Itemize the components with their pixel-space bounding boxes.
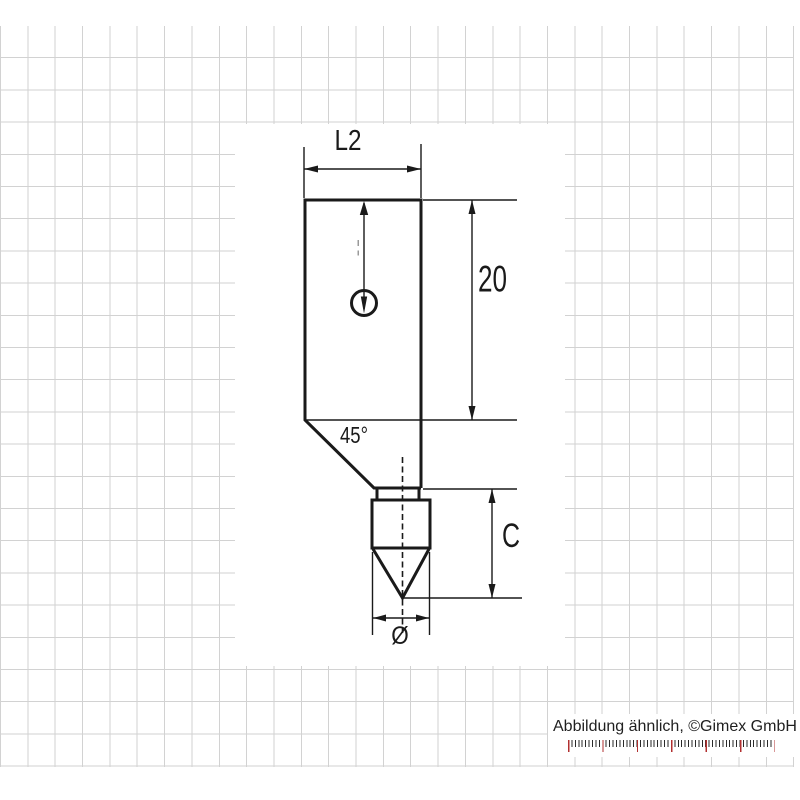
part-outline [305,200,430,598]
neck [377,489,419,500]
ruler-major-ticks [568,740,775,752]
caption-box: Abbildung ähnlich, ©Gimex GmbH [548,714,796,757]
product-image: L2 20 45° C Ø Abbildung ähnlich, ©Gimex … [0,0,800,800]
dimension-arrowheads [304,166,496,622]
dim-label-l2: L2 [335,125,362,157]
ruler-scale-icon [568,740,775,752]
centerline-dash-mark [358,251,360,256]
technical-drawing: L2 20 45° C Ø [0,0,800,800]
measuring-point-icon [352,201,377,316]
diameter-symbol: Ø [391,622,409,650]
cone-tip [373,549,429,598]
dimension-lines [304,144,522,635]
dim-label-c: C [502,517,520,555]
centerline-dash-mark [358,240,360,246]
cylinder [372,500,430,548]
caption-text: Abbildung ähnlich, ©Gimex GmbH [553,718,793,736]
dim-label-20: 20 [478,259,507,300]
angle-label-45: 45° [340,422,368,448]
